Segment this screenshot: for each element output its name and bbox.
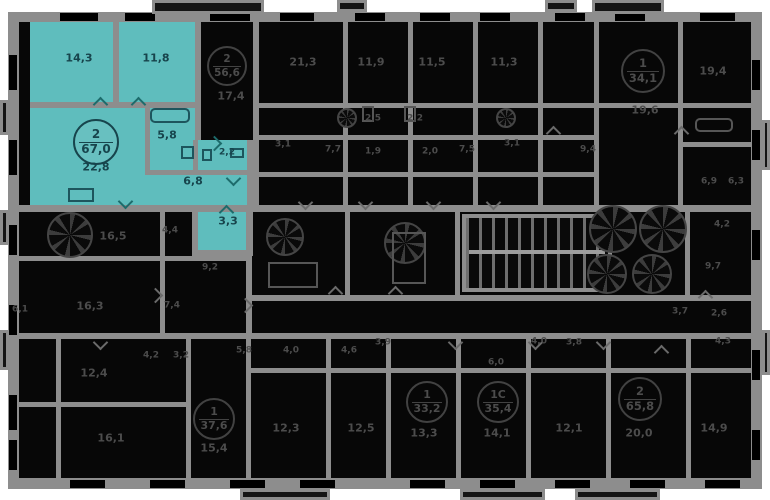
washer-icon: [181, 146, 194, 159]
apartment-badge: 137,6: [193, 398, 235, 440]
wall: [386, 339, 391, 478]
wall: [473, 22, 478, 207]
window: [300, 480, 335, 488]
window: [752, 60, 760, 90]
window: [9, 440, 17, 470]
wall: [456, 339, 461, 478]
room-area-label: 3,9: [375, 339, 391, 348]
badge-total-area: 34,1: [629, 73, 657, 84]
window: [555, 480, 590, 488]
window: [210, 13, 250, 21]
window: [125, 13, 155, 21]
elevator-fan-icon: [589, 205, 637, 253]
badge-total-area: 33,2: [414, 404, 441, 415]
room-area-label: 4,2: [143, 352, 159, 361]
balcony: [337, 0, 367, 12]
wall: [195, 22, 201, 140]
apartment-badge: 133,2: [406, 381, 448, 423]
badge-rooms-count: 1: [210, 407, 218, 418]
balcony: [0, 330, 9, 370]
ventilation-fan-icon: [47, 212, 93, 258]
room-area-label: 19,6: [631, 105, 658, 116]
window: [70, 480, 105, 488]
ventilation-fan-icon: [337, 108, 357, 128]
badge-rooms-count: 2: [92, 129, 100, 141]
window: [150, 480, 185, 488]
wall: [259, 103, 599, 108]
wall: [345, 212, 350, 295]
wall: [526, 339, 531, 478]
apartment-badge: 134,1: [621, 49, 665, 93]
room-area-label: 14,3: [65, 53, 92, 64]
room-area-label: 13,3: [410, 428, 437, 439]
wall: [18, 256, 251, 261]
room-area-label: 6,0: [488, 359, 504, 368]
wall: [246, 212, 252, 333]
elevator-fan-icon: [632, 254, 672, 294]
room-area-label: 2,0: [422, 148, 438, 157]
wall: [246, 339, 251, 478]
room-area-label: 2,6: [711, 310, 727, 319]
room-area-label: 2,5: [365, 115, 381, 124]
badge-total-area: 35,4: [485, 404, 512, 415]
room-area-label: 16,5: [99, 231, 126, 242]
room-area-label: 3,8: [566, 339, 582, 348]
room-area-label: 11,9: [357, 57, 384, 68]
room-area-label: 2,2: [407, 115, 423, 124]
elevator-fan-icon: [639, 205, 687, 253]
kitchen-counter-icon: [68, 188, 94, 202]
badge-total-area: 56,6: [214, 68, 240, 78]
room-area-label: 11,8: [142, 53, 169, 64]
badge-rooms-count: 2: [223, 54, 230, 64]
wall: [18, 402, 191, 407]
window: [700, 13, 735, 21]
room-area-label: 3,7: [672, 308, 688, 317]
room-area-label: 11,3: [490, 57, 517, 68]
balcony: [152, 0, 264, 14]
wall: [113, 22, 119, 102]
room-area-label: 17,4: [217, 91, 244, 102]
room-area-label: 9,7: [705, 263, 721, 272]
toilet-icon: [202, 149, 212, 161]
elevator-fan-icon: [587, 254, 627, 294]
badge-rooms-count: 1: [639, 58, 647, 69]
badge-total-area: 67,0: [81, 144, 111, 156]
room-area-label: 4,0: [531, 338, 547, 347]
apartment-badge: 256,6: [207, 46, 247, 86]
room-area-label: 4,3: [715, 338, 731, 347]
floor-plan-canvas: 14,311,822,85,82,26,83,317,421,311,911,5…: [0, 0, 770, 500]
wall: [538, 22, 543, 207]
room-area-label: 14,9: [700, 423, 727, 434]
window: [480, 13, 510, 21]
room-area-label: 4,0: [283, 347, 299, 356]
room-area-label: 19,4: [699, 66, 726, 77]
room-area-label: 9,4: [580, 146, 596, 155]
room-area-label: 4,4: [162, 227, 178, 236]
ventilation-fan-icon: [496, 108, 516, 128]
bathtub-icon: [695, 118, 733, 132]
room-area-label: 3,1: [504, 140, 520, 149]
apartment-badge: 265,8: [618, 377, 662, 421]
room-area-label: 3,1: [275, 141, 291, 150]
badge-total-area: 65,8: [626, 401, 654, 412]
room-area-label: 12,5: [347, 423, 374, 434]
window: [705, 480, 740, 488]
wall: [678, 22, 683, 207]
badge-rooms-count: 1С: [490, 390, 506, 401]
room-area-label: 12,3: [272, 423, 299, 434]
window: [630, 480, 665, 488]
window: [615, 13, 645, 21]
room-area-label: 16,1: [97, 433, 124, 444]
badge-total-area: 37,6: [201, 421, 228, 432]
room-area-label: 2,2: [219, 149, 235, 158]
window: [9, 395, 17, 430]
room-area-label: 20,0: [625, 428, 652, 439]
room-area-label: 3,3: [218, 216, 238, 227]
wall: [455, 212, 460, 295]
window: [752, 350, 760, 380]
window: [752, 230, 760, 260]
window: [9, 55, 17, 90]
selected-apartment-badge[interactable]: 267,0: [73, 119, 119, 165]
window: [60, 13, 98, 21]
wall: [192, 212, 198, 254]
room-area-label: 6,9: [701, 178, 717, 187]
wall: [259, 172, 599, 177]
room-area-label: 7,5: [459, 146, 475, 155]
room-area-label: 4,2: [714, 221, 730, 230]
room-area-label: 1,9: [365, 148, 381, 157]
room-area-label: 5,8: [236, 347, 252, 356]
window: [9, 140, 17, 175]
badge-rooms-count: 1: [423, 390, 431, 401]
balcony: [545, 0, 577, 12]
room-area-label: 6,1: [12, 306, 28, 315]
room-area-label: 12,4: [80, 368, 107, 379]
balcony: [0, 100, 9, 135]
window: [752, 430, 760, 460]
wall: [246, 295, 752, 301]
appliance-block-icon: [268, 262, 318, 288]
ventilation-fan-icon: [266, 218, 304, 256]
balcony: [460, 489, 545, 500]
window: [230, 480, 265, 488]
balcony: [0, 210, 9, 245]
balcony: [575, 489, 660, 500]
balcony: [240, 489, 330, 500]
appliance-block-icon: [392, 232, 426, 284]
room-area-label: 5,8: [157, 130, 177, 141]
badge-rooms-count: 2: [636, 386, 644, 397]
window: [355, 13, 385, 21]
wall: [253, 22, 259, 207]
window: [280, 13, 314, 21]
room-area-label: 3,2: [173, 352, 189, 361]
window: [752, 130, 760, 160]
wall: [326, 339, 331, 478]
window: [480, 480, 515, 488]
room-area-label: 9,2: [202, 264, 218, 273]
room-area-label: 11,5: [418, 57, 445, 68]
room-area-label: 21,3: [289, 57, 316, 68]
bathtub-icon: [150, 108, 190, 123]
window: [9, 225, 17, 255]
balcony: [762, 120, 770, 170]
room-area-label: 6,3: [728, 178, 744, 187]
apartment-badge: 1С35,4: [477, 381, 519, 423]
room-area-label: 7,4: [164, 302, 180, 311]
room-area-label: 12,1: [555, 423, 582, 434]
wall: [246, 368, 756, 373]
room-area-label: 16,3: [76, 301, 103, 312]
wall: [686, 339, 691, 478]
window: [555, 13, 585, 21]
window: [410, 480, 445, 488]
balcony: [592, 0, 664, 14]
wall: [599, 103, 752, 108]
room-area-label: 14,1: [483, 428, 510, 439]
room-area-label: 6,8: [183, 176, 203, 187]
balcony: [762, 330, 770, 375]
room-area-label: 15,4: [200, 443, 227, 454]
wall: [594, 22, 599, 207]
wall: [606, 339, 611, 478]
room-area-label: 7,7: [325, 146, 341, 155]
room-area-label: 4,6: [341, 347, 357, 356]
wall: [683, 142, 752, 147]
window: [420, 13, 450, 21]
wall: [56, 339, 61, 478]
